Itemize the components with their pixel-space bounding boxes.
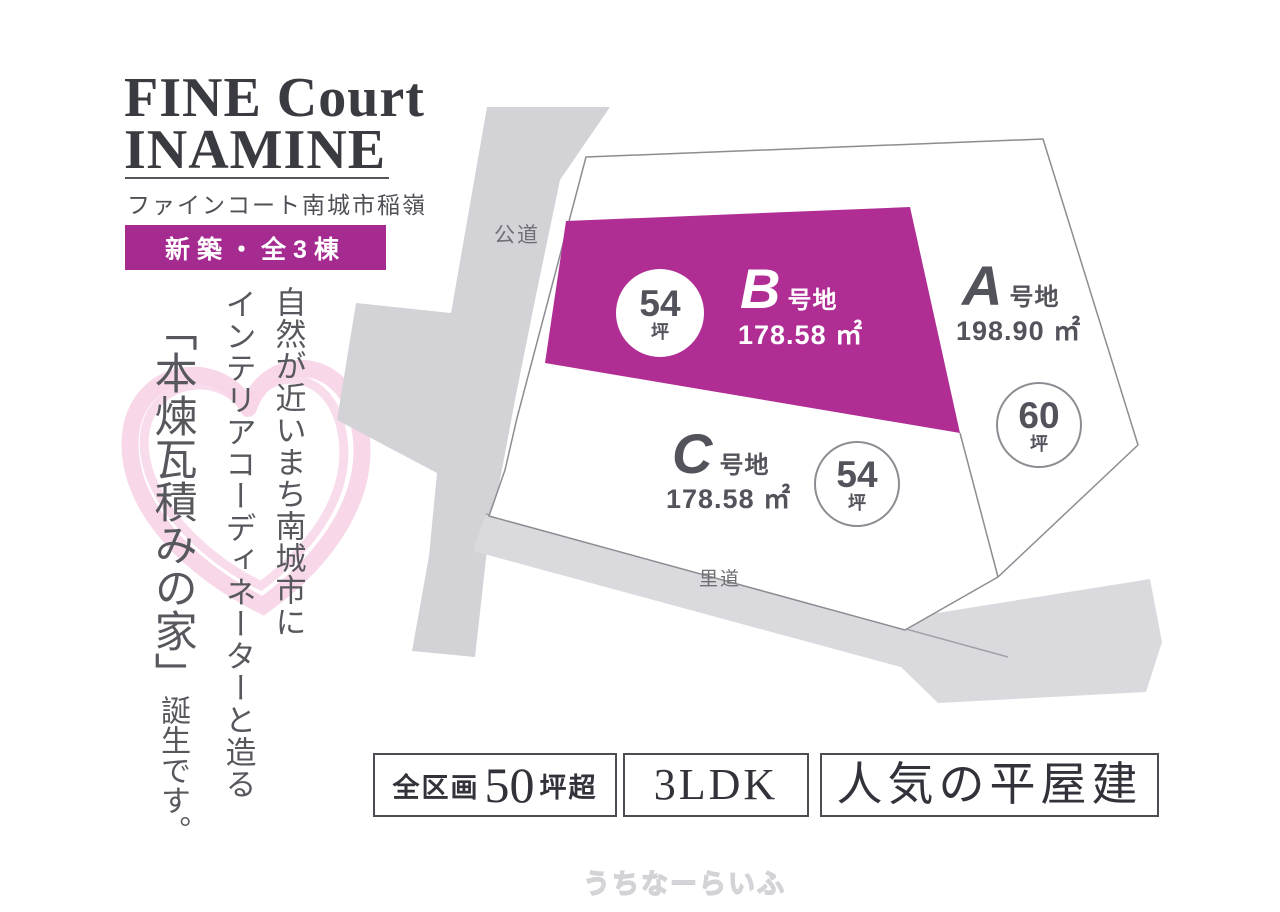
plot-a-area: 198.90 ㎡ bbox=[956, 318, 1081, 345]
plot-b-tsubo-badge: 54 坪 bbox=[616, 269, 704, 357]
feature-box-3ldk: 3LDK bbox=[623, 753, 809, 817]
plot-c-title: C 号地 bbox=[672, 426, 769, 482]
feature-hiraya-label: 人気の平屋建 bbox=[837, 762, 1143, 808]
road-label-koudou: 公道 bbox=[494, 219, 540, 249]
plot-c-tsubo-unit: 坪 bbox=[848, 494, 866, 512]
plot-a-tsubo-value: 60 bbox=[1018, 397, 1059, 434]
feature-box-lot-size: 全区画 50 坪超 bbox=[373, 753, 617, 817]
plot-c-tsubo-value: 54 bbox=[836, 456, 877, 493]
flyer-canvas: FINE Court INAMINE ファインコート南城市稲嶺 新築・全3棟 自… bbox=[0, 0, 1280, 912]
plot-a-letter: A bbox=[962, 258, 1002, 314]
logo-line2: INAMINE bbox=[124, 122, 386, 178]
plot-b-tsubo-unit: 坪 bbox=[651, 323, 669, 341]
feature-3ldk-label: 3LDK bbox=[654, 763, 778, 807]
feature-lot-number: 50 bbox=[485, 760, 535, 810]
plot-b-gouchi: 号地 bbox=[787, 289, 837, 313]
feature-lot-suffix: 坪超 bbox=[540, 766, 598, 805]
plot-b-title: B 号地 bbox=[740, 261, 837, 317]
plot-c-area: 178.58 ㎡ bbox=[666, 486, 791, 513]
tagline-column-1: 自然が近いまち南城市に bbox=[271, 286, 304, 638]
plot-a-tsubo-badge: 60 坪 bbox=[996, 382, 1082, 468]
plot-c-tsubo-badge: 54 坪 bbox=[814, 441, 900, 527]
plot-c-letter: C bbox=[672, 426, 712, 482]
logo-divider bbox=[125, 177, 389, 179]
plot-a-gouchi: 号地 bbox=[1009, 286, 1059, 310]
plot-c-gouchi: 号地 bbox=[719, 454, 769, 478]
plot-b-area: 178.58 ㎡ bbox=[738, 322, 863, 349]
plot-b-letter: B bbox=[740, 261, 780, 317]
plot-b-tsubo-value: 54 bbox=[639, 285, 680, 322]
plot-a-tsubo-unit: 坪 bbox=[1030, 435, 1048, 453]
tagline-brand-phrase: 「本煉瓦積みの家」 bbox=[148, 308, 196, 695]
logo-line1: FINE Court bbox=[124, 70, 425, 126]
feature-box-hiraya: 人気の平屋建 bbox=[820, 753, 1159, 817]
new-build-badge: 新築・全3棟 bbox=[125, 225, 386, 270]
logo-subtitle: ファインコート南城市稲嶺 bbox=[127, 186, 427, 220]
feature-lot-prefix: 全区画 bbox=[393, 766, 480, 805]
tagline-column-2: インテリアコーディネーターと造る bbox=[221, 288, 254, 800]
plot-a-title: A 号地 bbox=[962, 258, 1059, 314]
tagline-column-3: 「本煉瓦積みの家」誕生です。 bbox=[149, 308, 194, 845]
tagline-suffix: 誕生です。 bbox=[156, 695, 189, 845]
road-label-ridou: 里道 bbox=[699, 564, 741, 591]
watermark-logo: うちなーらいふ bbox=[583, 862, 786, 901]
